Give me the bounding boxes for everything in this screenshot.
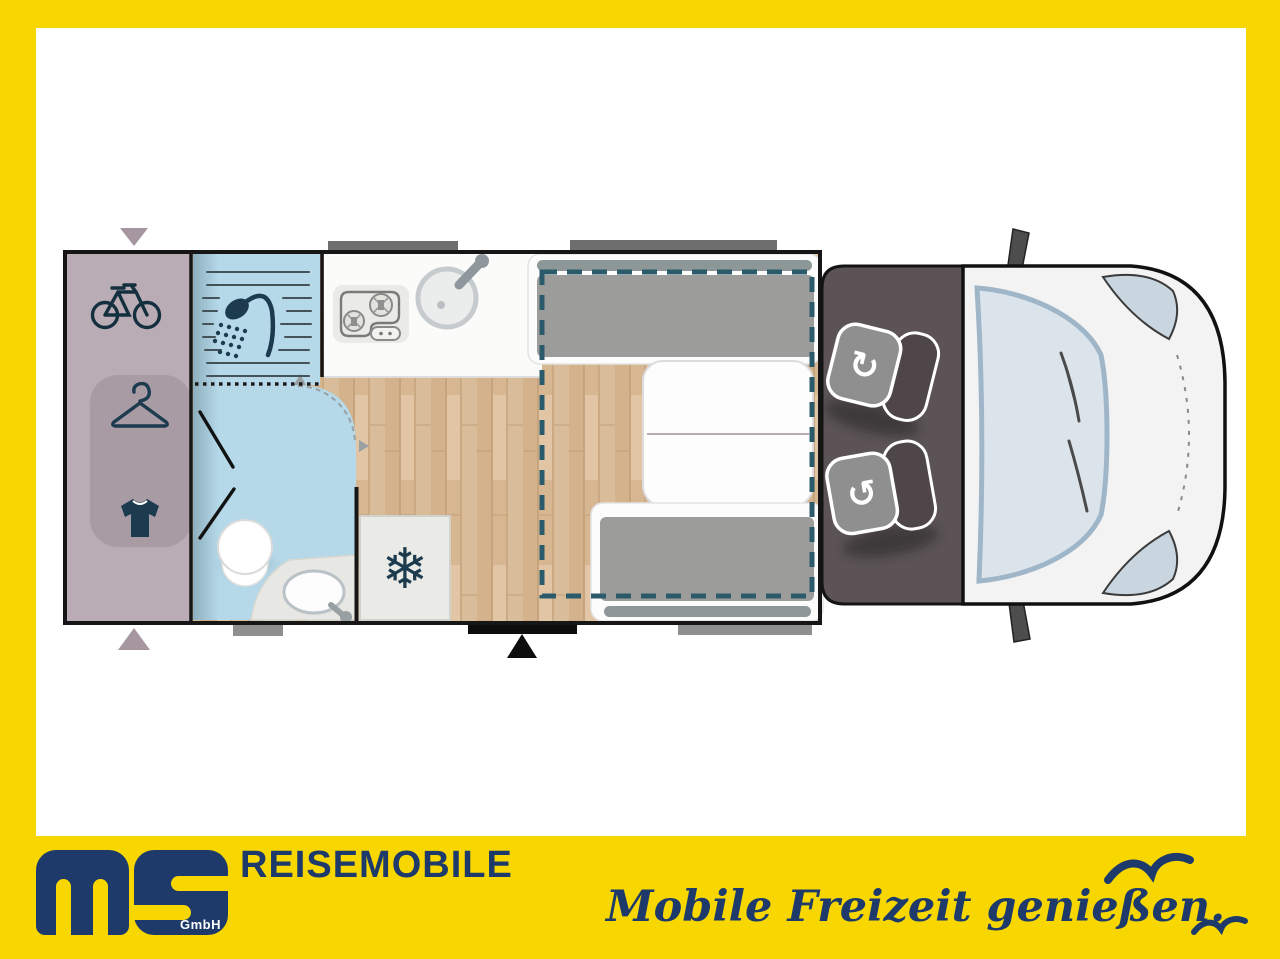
seagull-icons [1098, 846, 1268, 956]
seagull-icon-large [1108, 857, 1190, 880]
mirror-top [1008, 229, 1029, 269]
bench-bottom [591, 503, 823, 621]
floorplan-svg: ❄ [63, 225, 1232, 665]
mirror-bottom [1009, 601, 1030, 642]
snowflake-icon: ❄ [382, 537, 429, 602]
ms-logo: GmbH [36, 850, 228, 936]
vehicle-front [963, 266, 1225, 604]
kitchen [324, 253, 542, 377]
table [643, 361, 813, 506]
rear-garage [65, 252, 207, 623]
garage-hatch-bottom-arrow [118, 628, 150, 650]
cab: ↻ ↺ [818, 229, 1225, 642]
brand-title: REISEMOBILE [240, 844, 513, 887]
entry-arrow [507, 634, 537, 658]
brand-bar: GmbH REISEMOBILE Mobile Freizeit genieße… [0, 836, 1280, 959]
motorhome-floorplan: ❄ [63, 225, 1232, 665]
fridge: ❄ [360, 516, 450, 620]
seagull-icon-small [1194, 919, 1245, 932]
page: ❄ [0, 0, 1280, 959]
garage-hatch-top-arrow [120, 228, 148, 246]
logo-letter-s: GmbH [134, 850, 228, 935]
logo-letter-m [36, 850, 129, 935]
logo-gmbh-text: GmbH [180, 917, 221, 932]
windshield [977, 288, 1107, 581]
stove-icon [333, 285, 409, 343]
